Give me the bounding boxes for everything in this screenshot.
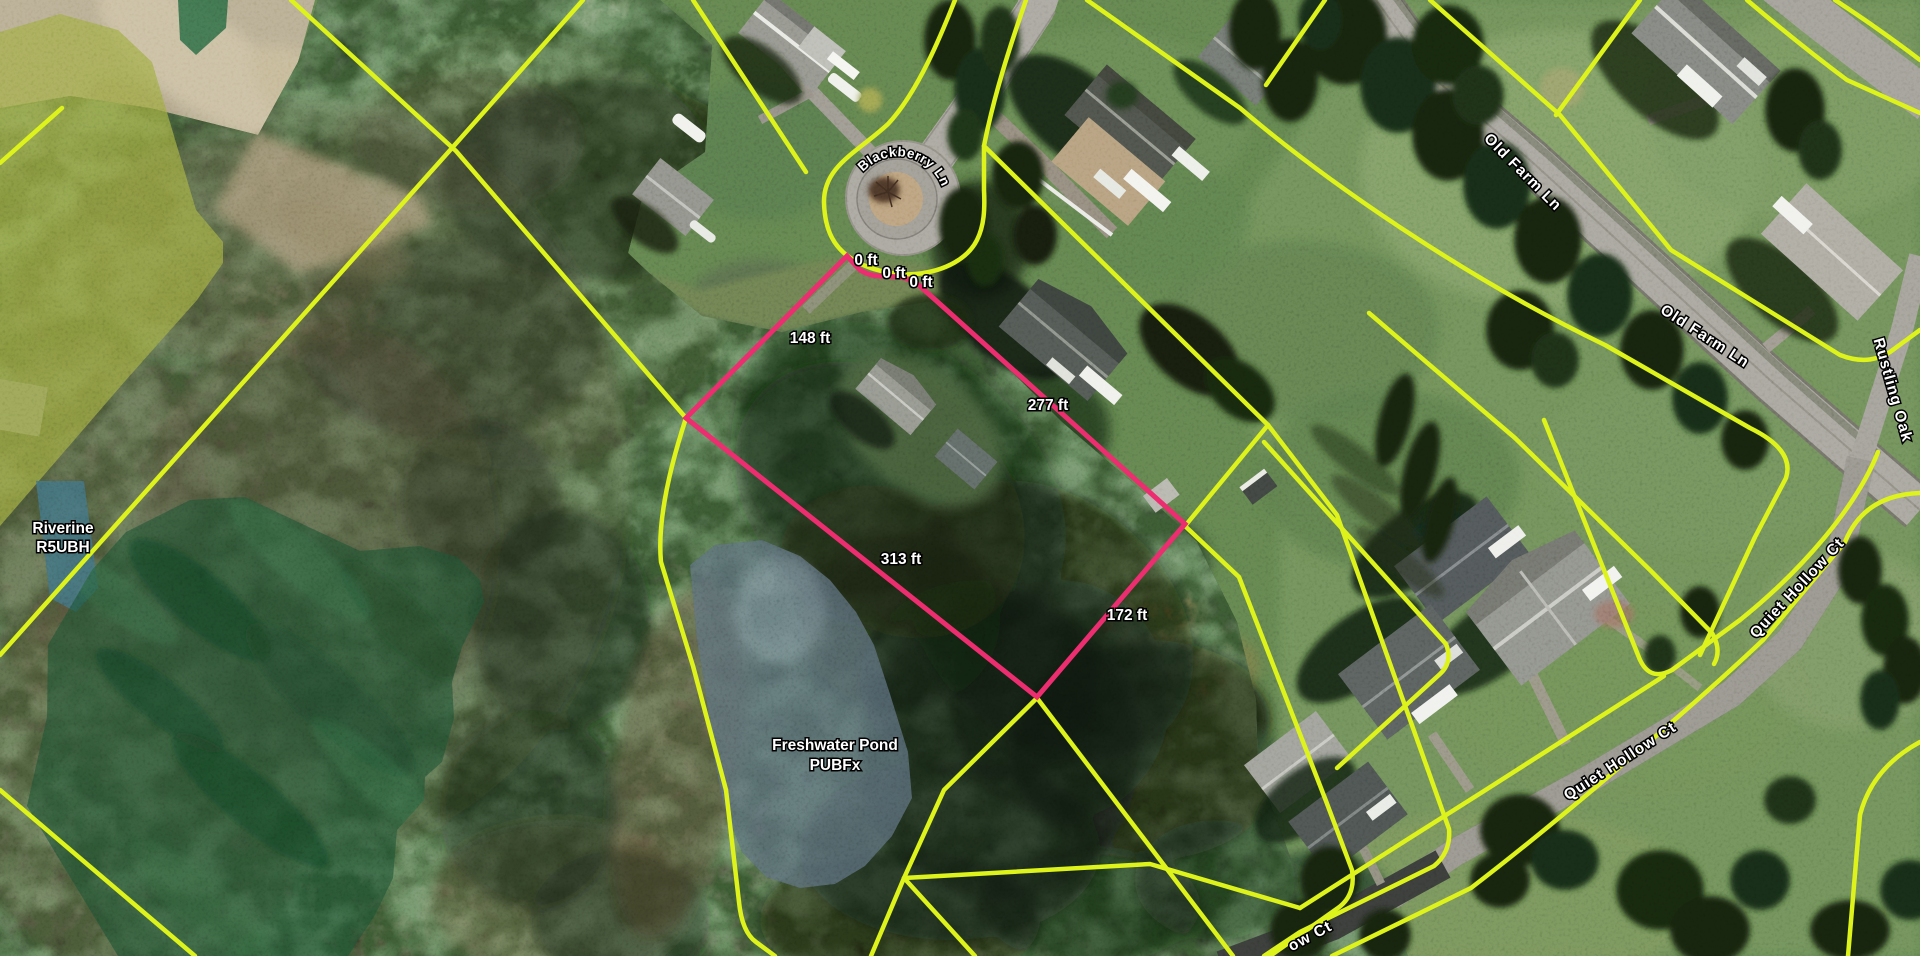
svg-text:172 ft: 172 ft: [1107, 607, 1148, 624]
svg-text:PUBFx: PUBFx: [810, 757, 861, 774]
svg-text:277 ft: 277 ft: [1028, 397, 1069, 414]
svg-text:0 ft: 0 ft: [882, 265, 905, 282]
svg-text:0 ft: 0 ft: [909, 274, 932, 291]
svg-text:0 ft: 0 ft: [854, 252, 877, 269]
svg-text:R5UBH: R5UBH: [36, 539, 89, 556]
svg-text:Freshwater Pond: Freshwater Pond: [772, 737, 898, 754]
svg-text:313 ft: 313 ft: [881, 551, 922, 568]
svg-text:Riverine: Riverine: [32, 520, 94, 537]
svg-text:148 ft: 148 ft: [790, 330, 831, 347]
